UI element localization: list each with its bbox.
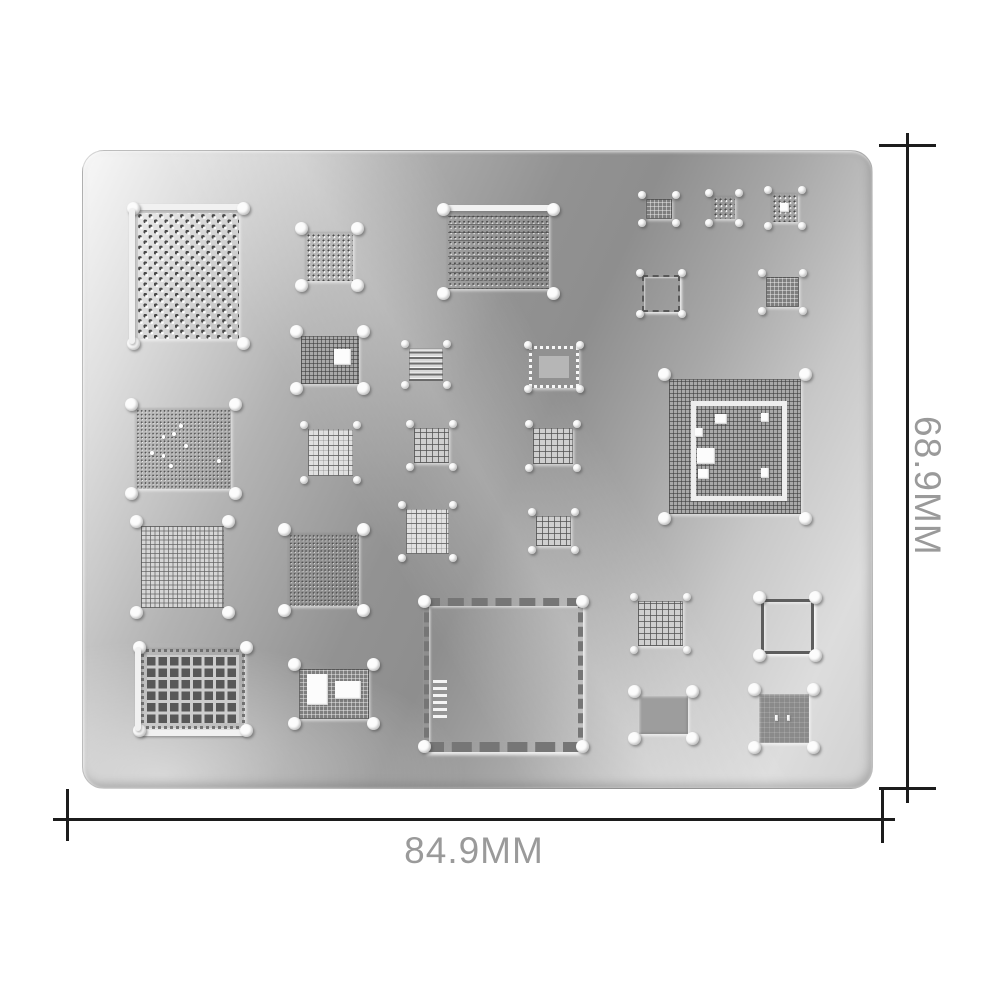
corner-notch: [357, 604, 370, 617]
corner-notch: [353, 476, 361, 484]
corner-notch: [683, 646, 691, 654]
corner-notch: [401, 381, 409, 389]
corner-notch: [237, 202, 250, 215]
corner-notch: [638, 191, 646, 199]
corner-notch: [437, 203, 450, 216]
corner-notch: [571, 546, 579, 554]
corner-notch: [678, 310, 686, 318]
corner-notch: [705, 189, 713, 197]
corner-notch: [809, 591, 822, 604]
height-dimension-tick-bottom: [879, 787, 936, 790]
pad-hollow-dashed: [642, 275, 680, 312]
corner-notch: [576, 740, 589, 753]
corner-notch: [406, 420, 414, 428]
corner-notch: [127, 202, 140, 215]
corner-notch: [437, 287, 450, 300]
white-cutout: [761, 413, 769, 422]
corner-notch: [351, 279, 364, 292]
corner-notch: [764, 186, 772, 194]
corner-notch: [735, 189, 743, 197]
corner-notch: [630, 593, 638, 601]
pad-grid-light-2: [406, 509, 449, 554]
white-cutout: [307, 674, 328, 705]
corner-notch: [127, 337, 140, 350]
bga-ram-wide: [448, 214, 549, 289]
corner-notch: [686, 685, 699, 698]
pad-grid-light: [308, 429, 353, 476]
corner-notch: [524, 341, 532, 349]
corner-notch: [658, 512, 671, 525]
width-dimension-line: [53, 818, 895, 821]
panel-cutout: [539, 356, 569, 378]
corner-notch: [573, 464, 581, 472]
dot-cutout: [150, 451, 154, 455]
white-cutout: [787, 715, 790, 722]
corner-notch: [130, 606, 143, 619]
corner-notch: [398, 554, 406, 562]
corner-notch: [576, 385, 584, 393]
corner-notch: [628, 685, 641, 698]
corner-notch: [288, 717, 301, 730]
corner-notch: [807, 741, 820, 754]
corner-notch: [290, 382, 303, 395]
corner-notch: [748, 741, 761, 754]
bga-dot-grid-small: [306, 233, 353, 281]
white-cutout: [761, 468, 769, 477]
corner-notch: [630, 646, 638, 654]
white-cutout: [715, 414, 727, 423]
corner-notch: [229, 487, 242, 500]
corner-notch: [222, 606, 235, 619]
product-photo: 84.9MM 68.9MM: [0, 0, 1000, 1000]
corner-notch: [353, 421, 361, 429]
corner-notch: [672, 219, 680, 227]
dot-cutout: [162, 435, 166, 439]
corner-notch: [133, 641, 146, 654]
corner-notch: [735, 219, 743, 227]
corner-notch: [357, 523, 370, 536]
dot-cutout: [169, 464, 173, 468]
corner-notch: [125, 487, 138, 500]
cpu-grid-cutout: [301, 336, 359, 384]
corner-notch: [636, 269, 644, 277]
corner-notch: [240, 724, 253, 737]
corner-notch: [398, 501, 406, 509]
corner-notch: [443, 340, 451, 348]
height-dimension-label: 68.9MM: [906, 416, 948, 556]
frame-perimeter-large: [424, 598, 583, 752]
height-dimension-tick-top: [879, 144, 936, 147]
nand-micro-dots: [136, 409, 231, 489]
corner-notch: [547, 203, 560, 216]
stencil-plate: [82, 150, 873, 789]
corner-notch: [705, 219, 713, 227]
white-cutout: [775, 715, 778, 722]
corner-notch: [449, 420, 457, 428]
corner-notch: [628, 732, 641, 745]
corner-notch: [449, 554, 457, 562]
dot-cutout: [217, 459, 221, 463]
corner-notch: [401, 340, 409, 348]
corner-notch: [764, 222, 772, 230]
pad-grid-3: [536, 516, 571, 546]
corner-notch: [524, 385, 532, 393]
corner-notch: [357, 382, 370, 395]
corner-notch: [799, 512, 812, 525]
pad-grid-1: [414, 428, 449, 463]
corner-notch: [130, 515, 143, 528]
pad-solid-square: [759, 694, 809, 743]
pad-striped-small: [409, 348, 443, 381]
corner-notch: [636, 310, 644, 318]
connector-pads: [299, 669, 369, 719]
corner-notch: [357, 325, 370, 338]
corner-notch: [528, 546, 536, 554]
corner-notch: [443, 381, 451, 389]
pad-grid-4: [638, 601, 683, 646]
corner-notch: [573, 420, 581, 428]
corner-notch: [528, 508, 536, 516]
dot-cutout: [162, 454, 166, 458]
corner-notch: [683, 593, 691, 601]
pad-grid-2: [533, 428, 573, 464]
corner-notch: [290, 325, 303, 338]
corner-notch: [295, 222, 308, 235]
corner-notch: [418, 595, 431, 608]
corner-notch: [367, 658, 380, 671]
corner-notch: [222, 515, 235, 528]
corner-notch: [229, 398, 242, 411]
corner-notch: [753, 591, 766, 604]
corner-notch: [799, 269, 807, 277]
pad-solid-rect: [639, 696, 688, 734]
corner-notch: [125, 398, 138, 411]
corner-notch: [237, 337, 250, 350]
corner-notch: [300, 421, 308, 429]
corner-notch: [748, 683, 761, 696]
pad-hollow-solid: [761, 599, 814, 654]
corner-notch: [300, 476, 308, 484]
corner-notch: [288, 658, 301, 671]
corner-notch: [798, 222, 806, 230]
cpu-large-framed: [669, 379, 801, 514]
corner-notch: [351, 222, 364, 235]
corner-notch: [807, 683, 820, 696]
corner-notch: [240, 641, 253, 654]
white-cutout: [780, 203, 789, 212]
corner-notch: [571, 508, 579, 516]
corner-notch: [133, 724, 146, 737]
dot-cutout: [172, 432, 176, 436]
corner-notch: [758, 307, 766, 315]
corner-notch: [576, 341, 584, 349]
corner-notch: [686, 732, 699, 745]
pad-tiny-2: [713, 197, 735, 219]
corner-notch: [753, 649, 766, 662]
white-cutout: [698, 469, 709, 478]
corner-notch: [547, 287, 560, 300]
corner-notch: [799, 307, 807, 315]
corner-notch: [278, 523, 291, 536]
pad-tiny-1: [646, 199, 672, 219]
pad-micro-dots-2: [289, 534, 359, 606]
corner-notch: [638, 219, 646, 227]
width-dimension-label: 84.9MM: [53, 830, 895, 872]
white-cutout: [697, 448, 715, 464]
bga-large-diagonal: [138, 213, 239, 339]
corner-notch: [672, 191, 680, 199]
corner-notch: [278, 604, 291, 617]
white-cutout: [335, 681, 360, 699]
corner-notch: [418, 740, 431, 753]
corner-notch: [525, 464, 533, 472]
stripes-cutout: [433, 677, 446, 718]
corner-notch: [758, 269, 766, 277]
corner-notch: [295, 279, 308, 292]
corner-notch: [809, 649, 822, 662]
white-cutout: [695, 428, 703, 437]
pad-large-holes: [141, 649, 245, 729]
corner-notch: [658, 368, 671, 381]
pad-tiny-3: [772, 194, 798, 222]
pad-grid-fine: [141, 526, 224, 608]
corner-notch: [799, 368, 812, 381]
corner-notch: [449, 463, 457, 471]
corner-notch: [449, 501, 457, 509]
corner-notch: [367, 717, 380, 730]
corner-notch: [678, 269, 686, 277]
dot-cutout: [184, 444, 188, 448]
corner-notch: [576, 595, 589, 608]
corner-notch: [525, 420, 533, 428]
corner-notch: [406, 463, 414, 471]
pad-dotted-border: [529, 346, 579, 388]
corner-notch: [798, 186, 806, 194]
pad-grid-dark-small: [766, 277, 799, 307]
dot-cutout: [179, 424, 183, 428]
white-cutout: [334, 349, 351, 365]
